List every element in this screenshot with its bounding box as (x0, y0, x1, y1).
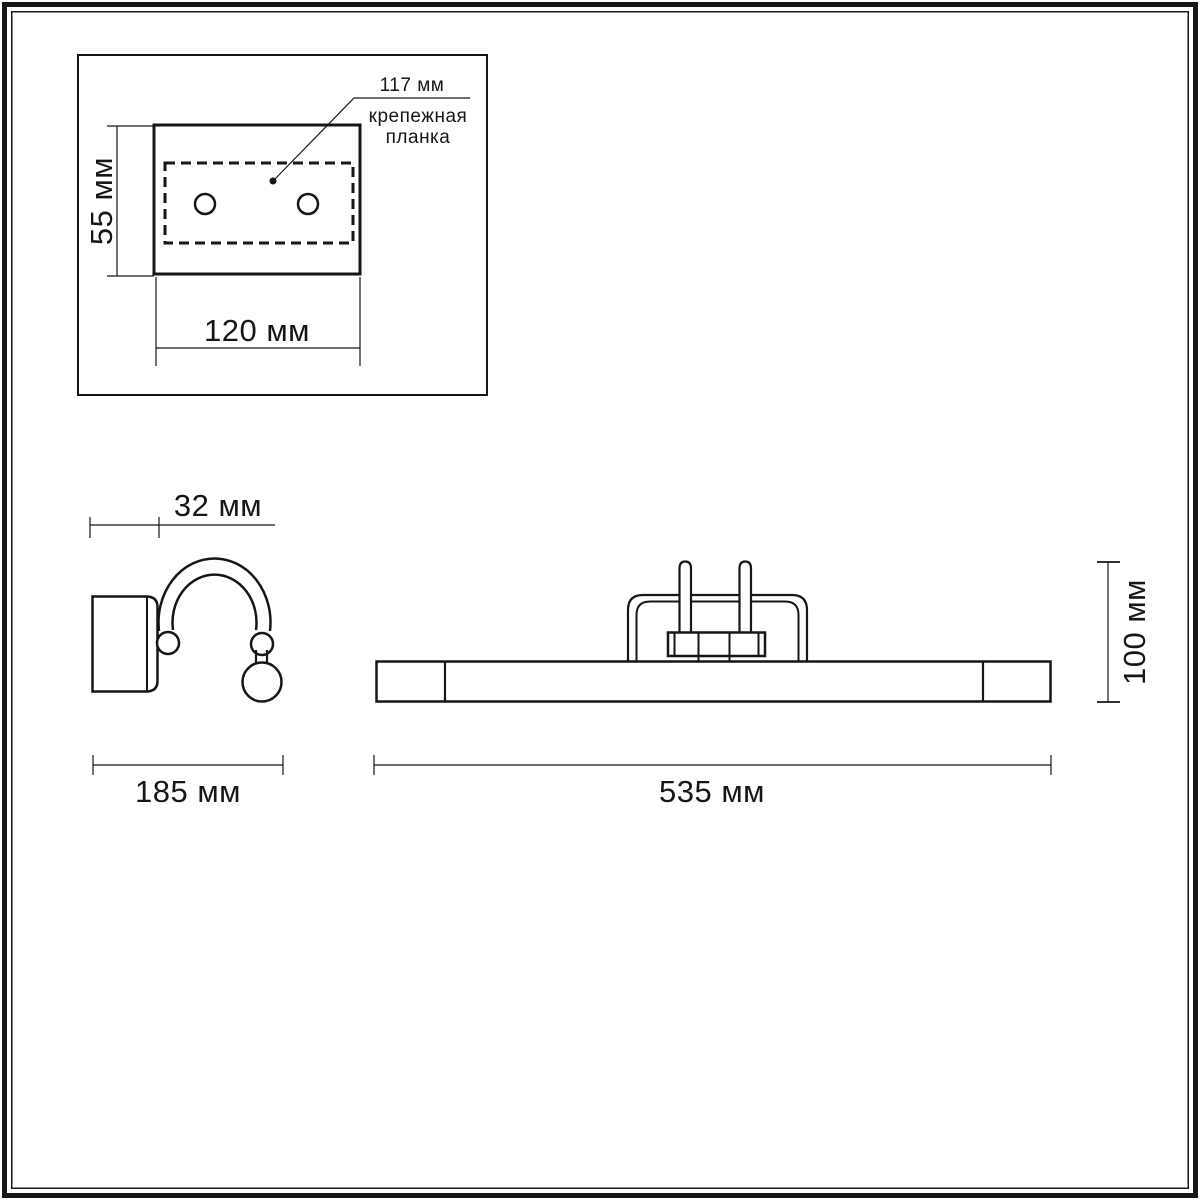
lamp-arm-inner-arc (173, 575, 257, 630)
front-height-label: 100 мм (1117, 579, 1152, 685)
lamp-ball-shade (243, 663, 282, 702)
callout-label-line1: крепежная (369, 106, 468, 127)
lamp-arm-outer-arc (159, 558, 271, 631)
arm-joint-ball-right (251, 633, 273, 655)
lamp-front-view: 100 мм 535 мм (374, 562, 1152, 810)
lamp-dimension-diagram: 117 мм крепежная планка 55 мм 120 мм (0, 0, 1200, 1200)
plate-width-label: 120 мм (204, 313, 310, 348)
plate-height-label: 55 мм (84, 157, 119, 245)
bracket-prong-left (680, 562, 692, 635)
side-depth-label: 32 мм (174, 488, 262, 523)
mounting-plate-view: 117 мм крепежная планка 55 мм 120 мм (78, 55, 487, 395)
front-width-dimension: 535 мм (374, 755, 1051, 809)
bracket-prong-right (740, 562, 752, 635)
clamp-block (668, 633, 765, 657)
side-width-dimension: 185 мм (93, 755, 283, 809)
plate-width-dimension: 120 мм (156, 277, 360, 366)
lamp-side-view: 32 мм 185 мм (90, 488, 283, 809)
arm-joint-ball-left (157, 632, 179, 654)
plate-height-dimension: 55 мм (84, 126, 154, 276)
screw-hole-left (195, 194, 215, 214)
callout-label-line2: планка (386, 127, 451, 148)
side-depth-dimension: 32 мм (90, 488, 275, 538)
side-width-label: 185 мм (135, 774, 241, 809)
lamp-body-bar (377, 662, 1051, 702)
mounting-plate (154, 125, 360, 274)
technical-drawing-page: 117 мм крепежная планка 55 мм 120 мм (0, 0, 1200, 1200)
callout-value-label: 117 мм (380, 75, 445, 96)
front-width-label: 535 мм (659, 774, 765, 809)
front-height-dimension: 100 мм (1097, 562, 1152, 702)
screw-hole-right (298, 194, 318, 214)
